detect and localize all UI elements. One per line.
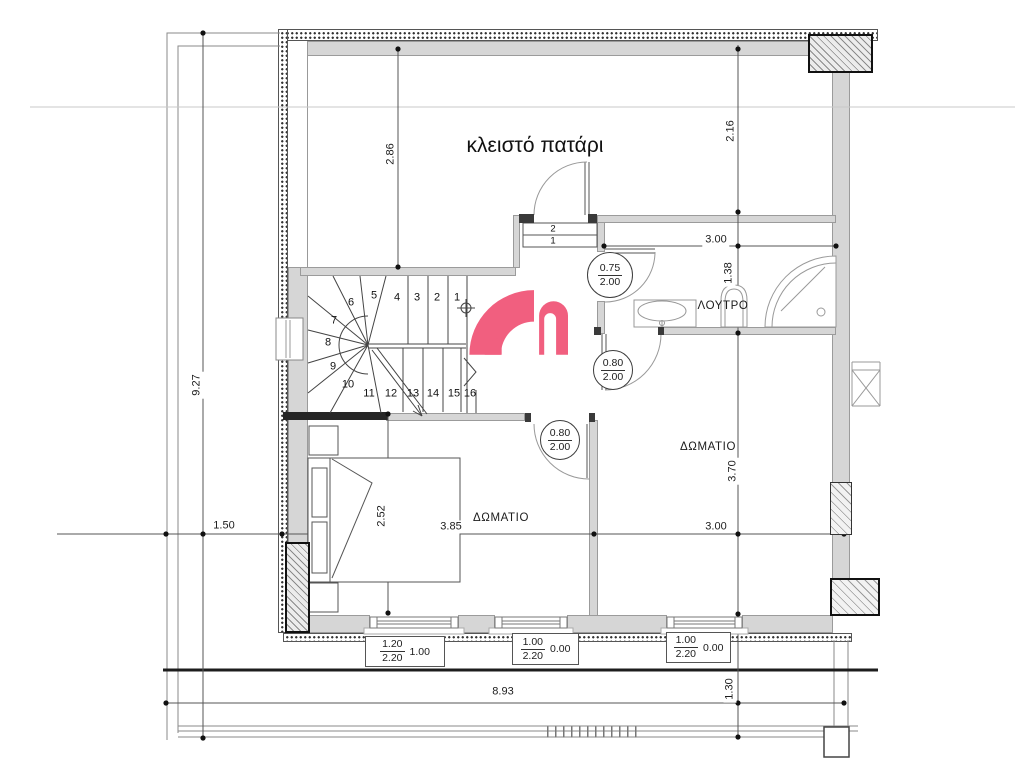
dim-terrace-width: 8.93 — [489, 686, 516, 699]
dim-terrace-left-offset: 1.50 — [210, 520, 237, 533]
stair-step-number: 9 — [330, 362, 336, 373]
stair-step-number: 4 — [394, 293, 400, 304]
jamb-loft-door-right — [588, 214, 597, 223]
jamb-bedroom-left-door-right — [589, 413, 595, 422]
stair-step-number: 6 — [348, 298, 354, 309]
sink-icon — [634, 300, 696, 331]
dim-bedroom-right-width: 3.00 — [702, 521, 729, 534]
door-tag-bedroom-right: 0.802.00 — [593, 350, 633, 390]
stair-step-number: 3 — [414, 293, 420, 304]
window-tag-1: 1.202.20 1.00 — [365, 636, 445, 667]
stair-step-number: 10 — [342, 380, 354, 391]
column-bottom-right-corner — [830, 578, 880, 616]
stair-step-number: 13 — [407, 389, 419, 400]
jamb-loft-door-left — [519, 214, 534, 223]
dim-bedroom-left-depth: 2.52 — [376, 502, 389, 529]
stair-step-number: 15 — [448, 389, 460, 400]
window-1 — [370, 617, 458, 628]
door-tag-bedroom-left: 0.802.00 — [540, 420, 580, 460]
window-2 — [495, 617, 567, 628]
landing-step-number: 1 — [550, 236, 555, 246]
dim-loft-right-depth: 2.16 — [725, 117, 738, 144]
nightstand-bottom — [309, 583, 338, 612]
shaft-symbol — [852, 362, 880, 406]
dim-bath-width: 3.00 — [702, 234, 729, 247]
balcony-column — [824, 727, 849, 757]
dim-bath-depth: 1.38 — [723, 259, 736, 286]
dim-terrace-depth: 1.30 — [724, 675, 737, 702]
brand-logo — [466, 283, 568, 356]
nightstand-top — [309, 426, 338, 455]
jamb-bedroom-right-door-left — [594, 327, 601, 335]
landing-step-number: 2 — [550, 224, 555, 234]
landing-steps — [523, 223, 597, 247]
column-top-right — [808, 34, 873, 73]
jamb-bedroom-left-door-left — [525, 413, 531, 422]
jamb-bedroom-right-door-right — [658, 327, 664, 335]
stair-step-number: 12 — [385, 389, 397, 400]
stair-step-number: 14 — [427, 389, 439, 400]
column-right-mid — [830, 482, 852, 535]
shower-icon — [765, 256, 836, 327]
window-left-wall — [276, 318, 303, 360]
window-tag-3: 1.002.20 0.00 — [666, 632, 731, 663]
stair-step-number: 16 — [464, 389, 476, 400]
stair-step-number: 11 — [363, 389, 374, 400]
column-bottom-left — [285, 542, 310, 633]
floor-plan-canvas: κλειστό πατάρι ΛΟΥΤΡΟ ΔΩΜΑΤΙΟ ΔΩΜΑΤΙΟ 2.… — [0, 0, 1024, 768]
stair-step-number: 8 — [325, 338, 331, 349]
room-label-bedroom-left: ΔΩΜΑΤΙΟ — [473, 512, 529, 524]
dim-bedroom-left-width: 3.85 — [437, 521, 464, 534]
window-3 — [667, 617, 742, 628]
brand-logo-mark — [469, 290, 568, 355]
stair-step-number: 5 — [371, 291, 377, 302]
stair-step-number: 1 — [454, 293, 460, 304]
window-tag-2: 1.002.20 0.00 — [512, 633, 579, 665]
room-label-bedroom-right: ΔΩΜΑΤΙΟ — [680, 441, 736, 453]
door-tag-bathroom: 0.752.00 — [587, 252, 633, 298]
dim-loft-width: 2.86 — [385, 140, 398, 167]
dim-bedroom-right-depth: 3.70 — [727, 457, 740, 484]
stair-step-number: 7 — [331, 316, 337, 327]
stair-step-number: 2 — [434, 293, 440, 304]
room-label-bathroom: ΛΟΥΤΡΟ — [698, 300, 749, 312]
loft-label: κλειστό πατάρι — [467, 134, 604, 158]
dim-overall-left: 9.27 — [191, 371, 204, 398]
